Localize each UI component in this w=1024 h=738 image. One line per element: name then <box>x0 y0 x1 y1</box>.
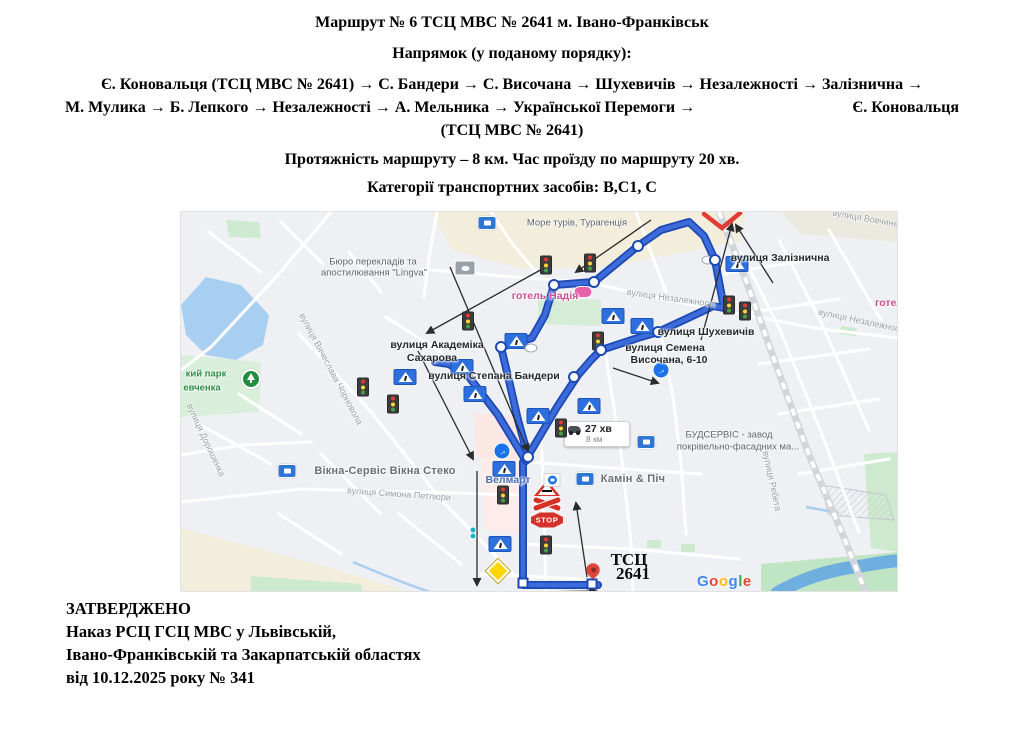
google-logo: Google <box>697 573 752 590</box>
street-line <box>386 317 441 352</box>
direction-heading: Напрямок (у поданому порядку): <box>0 45 1024 63</box>
map-area <box>431 212 746 268</box>
annotation-arrow <box>613 368 658 383</box>
google-logo-letter: g <box>729 573 739 590</box>
approval-line-1: ЗАТВЕРДЖЕНО <box>66 597 421 620</box>
route-length-line: Протяжність маршруту – 8 км. Час проїзду… <box>0 151 1024 169</box>
map-canvas <box>181 212 898 592</box>
map-area <box>226 220 261 238</box>
route-line-1: Є. Коновальця (ТСЦ МВС № 2641) → С. Банд… <box>65 73 959 96</box>
route-line-3: (ТСЦ МВС № 2641) <box>65 119 959 142</box>
street-line <box>349 252 381 292</box>
approval-block: ЗАТВЕРДЖЕНО Наказ РСЦ ГСЦ МВС у Львівськ… <box>66 597 421 689</box>
street-line <box>661 334 686 534</box>
annotation-arrow <box>533 591 596 592</box>
route-info-bubble: 27 хв 8 км <box>564 421 630 447</box>
street-line <box>209 232 261 272</box>
page-title: Маршрут № 6 ТСЦ МВС № 2641 м. Івано-Фран… <box>0 14 1024 32</box>
street-line <box>279 514 341 554</box>
route-line-2: М. Мулика → Б. Лепкого → Незалежності → … <box>65 96 959 119</box>
google-logo-letter: o <box>719 573 729 590</box>
street-line <box>481 574 581 579</box>
annotation-arrow <box>576 503 587 577</box>
street-line <box>239 394 301 434</box>
route-line-2-left: М. Мулика → Б. Лепкого → Незалежності → … <box>65 96 695 119</box>
street-line <box>541 427 546 592</box>
street-line <box>181 489 523 502</box>
route-line-2-right: Є. Коновальця <box>852 96 959 119</box>
street-line <box>321 454 381 514</box>
lake <box>181 277 269 360</box>
street-line <box>528 462 701 474</box>
approval-line-2: Наказ РСЦ ГСЦ МВС у Львівській, <box>66 620 421 643</box>
route-distance: 8 км <box>586 435 626 444</box>
map-area <box>681 544 695 552</box>
google-logo-letter: o <box>709 573 719 590</box>
route-description: Є. Коновальця (ТСЦ МВС № 2641) → С. Банд… <box>65 73 959 142</box>
street-line <box>606 357 633 592</box>
car-icon <box>568 426 581 433</box>
map-area <box>181 355 261 417</box>
route-map[interactable]: 27 хв 8 км →→STOP Море турів, Турагенція… <box>180 211 898 592</box>
annotation-arrow <box>427 268 544 333</box>
map-area <box>647 540 661 548</box>
vehicle-categories-line: Категорії транспортних засобів: В,С1, С <box>0 179 1024 197</box>
google-logo-letter: G <box>697 573 709 590</box>
street-line <box>399 514 461 564</box>
approval-line-3: Івано-Франківській та Закарпатській обла… <box>66 643 421 666</box>
street-line <box>829 230 881 320</box>
google-logo-letter: e <box>743 573 752 590</box>
street-line <box>424 212 437 297</box>
street-line <box>719 259 817 274</box>
map-area <box>781 212 898 242</box>
approval-line-4: від 10.12.2025 року № 341 <box>66 666 421 689</box>
